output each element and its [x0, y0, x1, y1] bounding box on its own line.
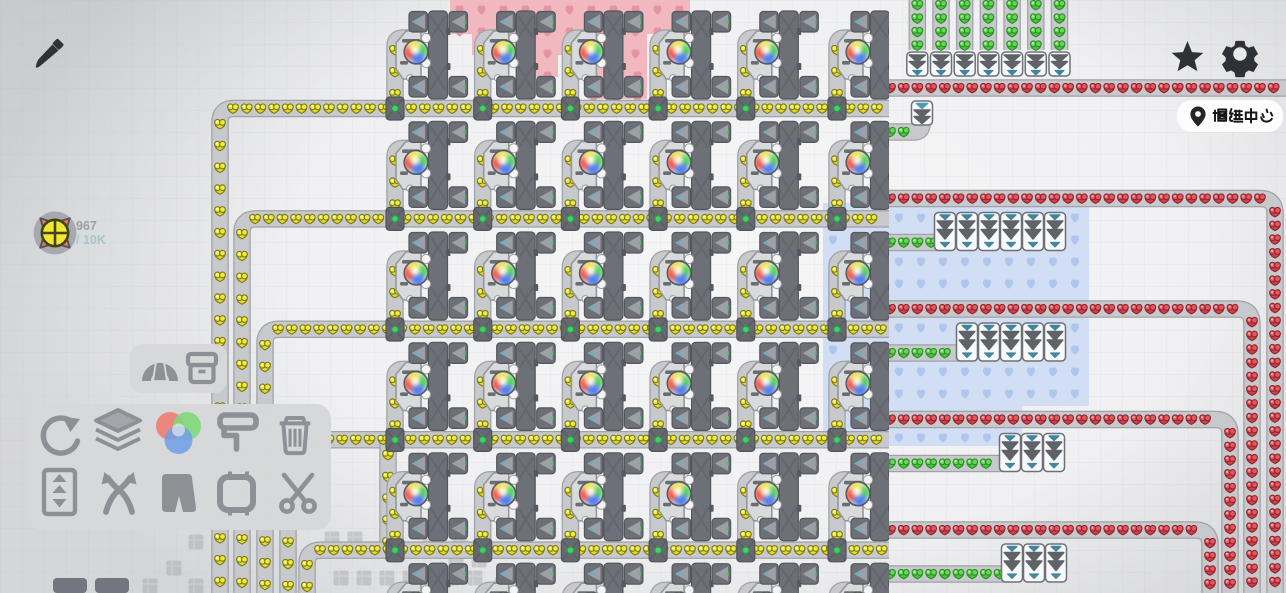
svg-text:/ 10K: / 10K: [76, 233, 106, 247]
svg-text:967: 967: [76, 219, 97, 233]
